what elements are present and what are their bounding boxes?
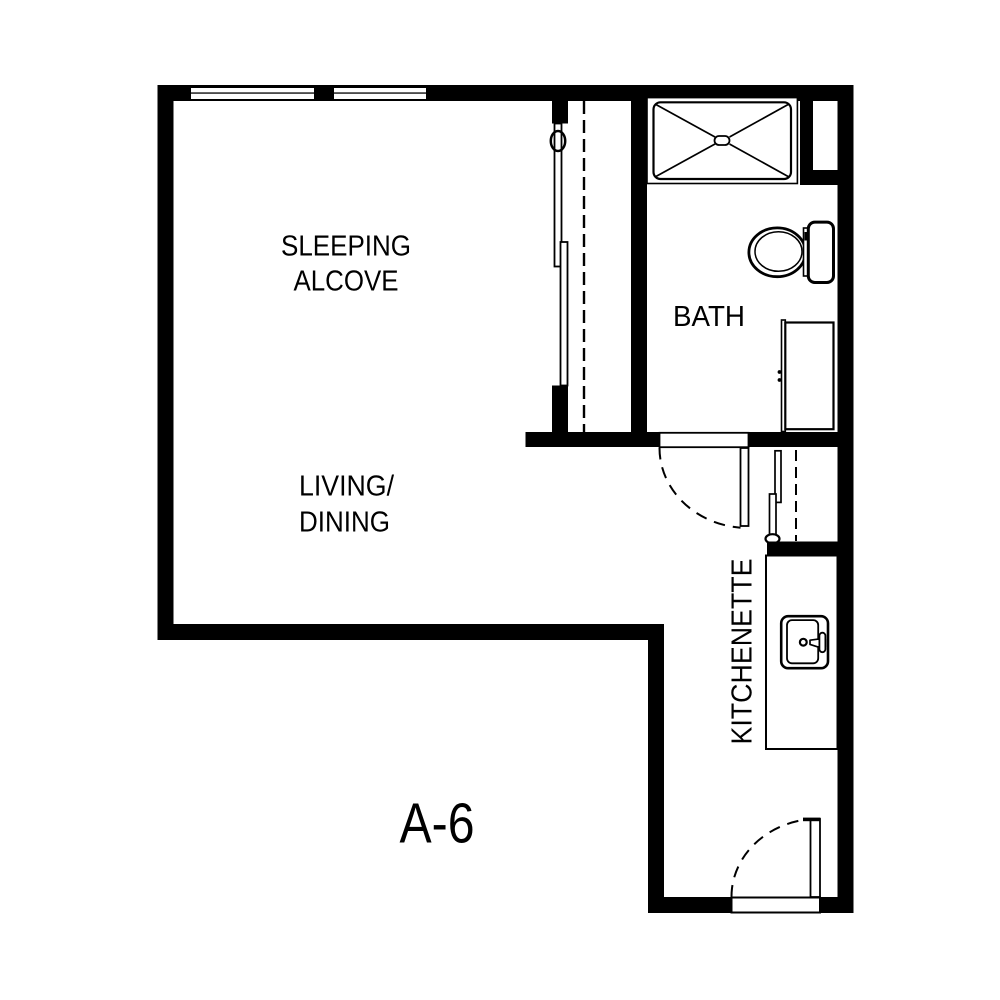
svg-text:SLEEPING: SLEEPING — [281, 231, 411, 263]
svg-text:ALCOVE: ALCOVE — [294, 266, 399, 298]
svg-text:BATH: BATH — [673, 301, 745, 333]
svg-text:KITCHENETTE: KITCHENETTE — [726, 559, 758, 745]
svg-text:DINING: DINING — [299, 506, 390, 538]
svg-text:LIVING/: LIVING/ — [299, 471, 394, 503]
svg-text:A-6: A-6 — [400, 793, 475, 856]
